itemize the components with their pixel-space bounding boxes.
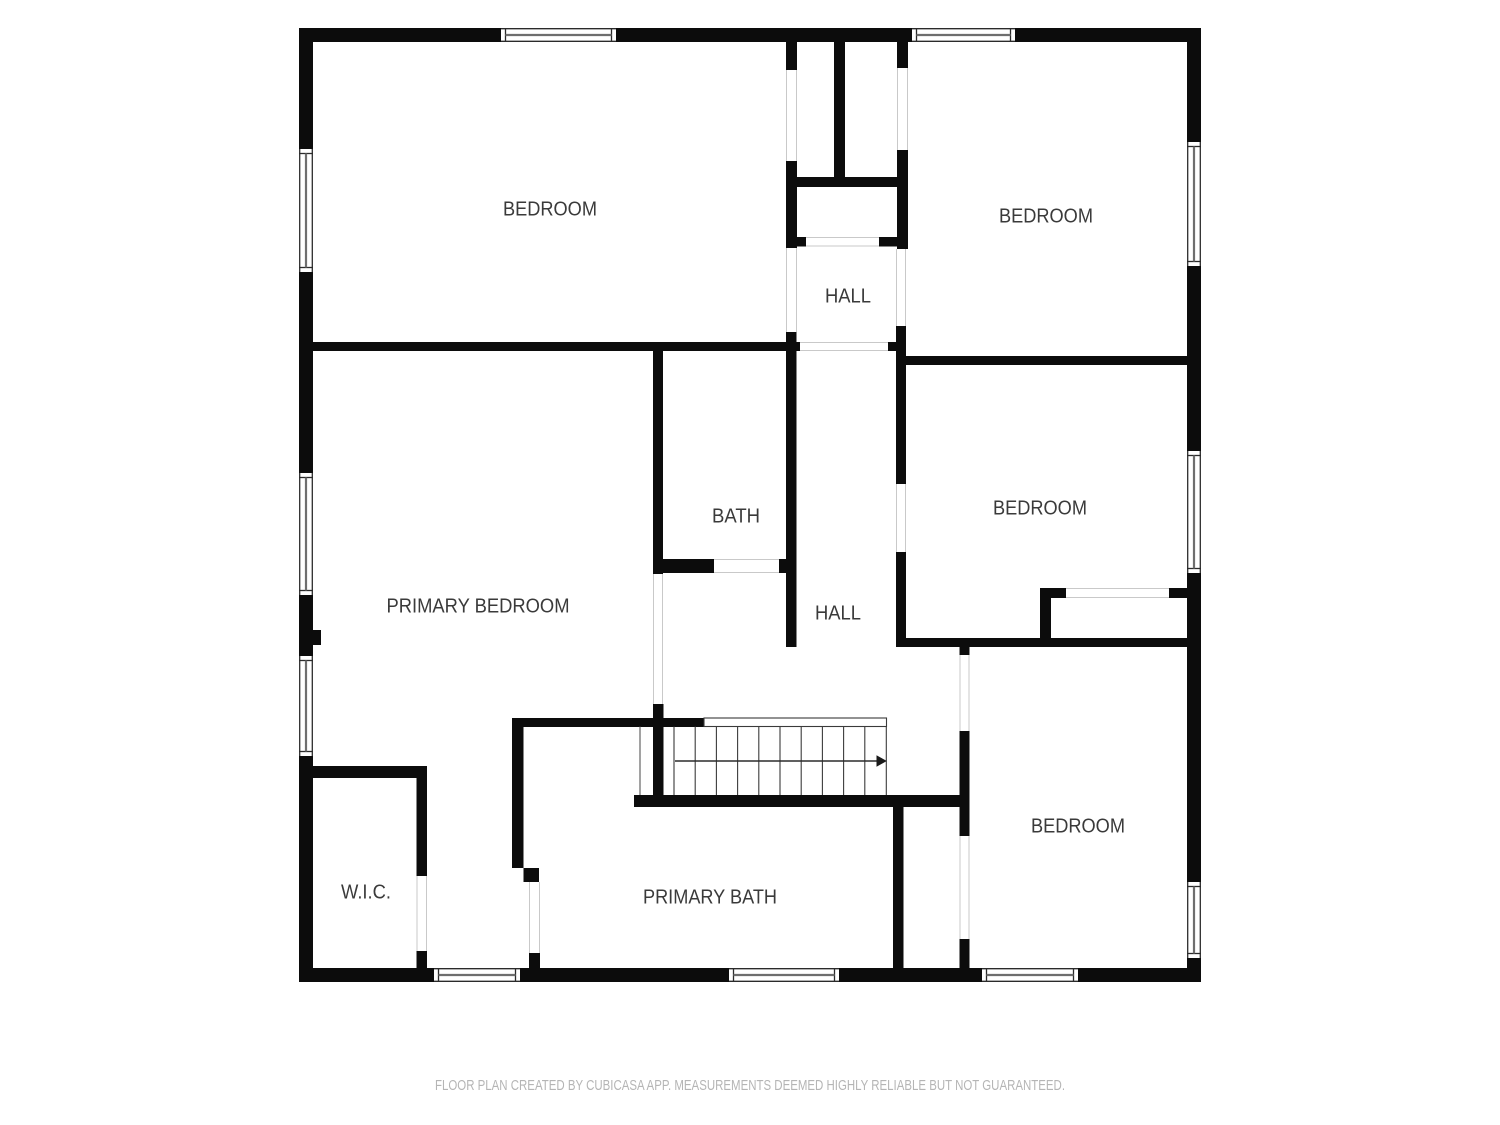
svg-text:HALL: HALL — [815, 602, 861, 625]
svg-text:PRIMARY BEDROOM: PRIMARY BEDROOM — [387, 595, 570, 618]
svg-text:HALL: HALL — [825, 285, 871, 308]
svg-text:BEDROOM: BEDROOM — [999, 205, 1093, 228]
svg-text:BEDROOM: BEDROOM — [993, 497, 1087, 520]
svg-text:PRIMARY BATH: PRIMARY BATH — [643, 886, 777, 909]
svg-text:FLOOR PLAN CREATED BY CUBICASA: FLOOR PLAN CREATED BY CUBICASA APP. MEAS… — [435, 1078, 1065, 1094]
svg-text:BEDROOM: BEDROOM — [503, 198, 597, 221]
svg-text:BATH: BATH — [712, 505, 760, 528]
svg-text:BEDROOM: BEDROOM — [1031, 815, 1125, 838]
svg-text:W.I.C.: W.I.C. — [341, 881, 391, 904]
